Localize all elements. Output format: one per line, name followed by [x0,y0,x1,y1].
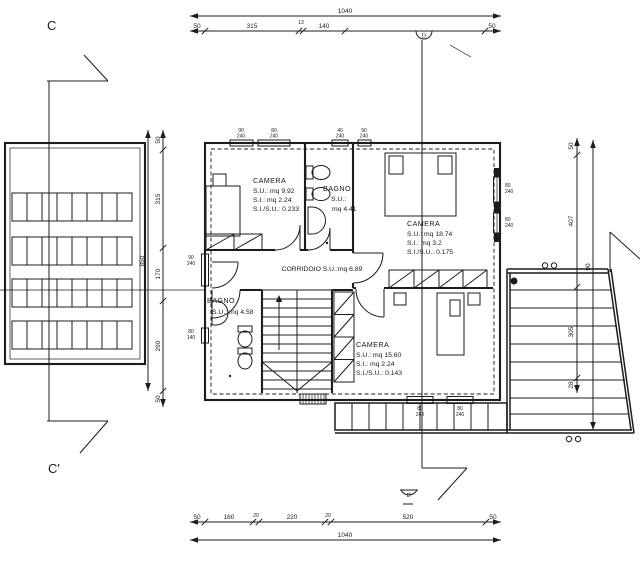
section-label-d-prime: D' [406,493,411,499]
window-tag: 240 [360,134,369,140]
window [258,140,290,146]
dim: 220 [287,514,298,521]
section-c-line [47,55,108,453]
room-name-camera3: CAMERA [356,340,389,349]
section-label-c: C [47,18,56,33]
room-area: S.I.: mq 2.24 [356,361,395,368]
window-tag: 240 [237,134,246,140]
newel-post [511,278,518,285]
section-d-line [400,40,467,504]
dim: 50 [489,514,497,521]
room-name-corridoio: CORRIDOIO S.U.:mq 6.89 [282,266,363,273]
room-name-camera1: CAMERA [253,176,286,185]
dim: 140 [319,23,330,30]
door-corridor-exterior [212,262,238,288]
room-name-bagno2: BAGNO [207,296,235,305]
room-area: S.U.: mq 4.58 [212,309,254,316]
room-area: S.I./S.U.: 0.175 [407,249,453,256]
window-tag: 240 [270,134,279,140]
dim-top-total: 1040 [338,8,353,15]
pergola-beam-row [12,321,132,349]
window-tag: 240 [505,223,514,229]
dim: 28 [568,381,575,389]
room-name-bagno1: BAGNO [323,184,351,193]
floor-plan-page: CAMERA S.U.: mq 9.92 S.I.: mq 2.24 S.I./… [0,0,640,561]
dim: 50 [155,395,162,403]
window [358,140,371,146]
window [202,328,209,343]
toilet-icon [238,326,252,347]
dim: 315 [155,193,162,204]
door-bagno1 [308,228,330,250]
section-label-c-prime: C' [48,461,60,476]
door-camera3 [356,289,384,317]
room-area: S.I.: mq 2.24 [253,197,292,204]
dim-bottom-total: 1040 [338,532,353,539]
window-tag: 240 [456,412,465,418]
bidet-icon [238,348,252,369]
wardrobe-camera3 [334,292,354,382]
room-area: mq 4.41 [332,206,357,213]
dim: 290 [155,340,162,351]
room-area: S.I.: mq 3.2 [407,240,442,247]
terrace-pergola [0,143,205,364]
pergola-beam-row [12,279,132,307]
window-tag: 140 [187,335,196,341]
bed-camera3 [394,293,480,355]
dim: 170 [155,268,162,279]
wardrobe-camera2 [389,270,487,288]
dim: 50 [193,514,201,521]
dim: 13 [298,20,304,26]
dim: 90 [585,263,592,271]
room-area: S.I./S.U.: 0.233 [253,206,299,213]
dim-left-total: 850 [139,255,146,266]
toilet-icon [306,166,330,180]
dim: 50 [568,142,575,150]
dim: 315 [247,23,258,30]
dim: 50 [488,23,496,30]
window-tag: 240 [336,134,345,140]
dim: 50 [193,23,201,30]
dim: 520 [403,514,414,521]
room-area: S.I./S.U.: 0.143 [356,370,402,377]
window [230,140,253,146]
window-tag: 240 [187,261,196,267]
floor-plan-canvas: CAMERA S.U.: mq 9.92 S.I.: mq 2.24 S.I./… [0,0,640,561]
dim: 20 [325,513,331,519]
room-area: S.U.: [331,196,346,203]
window-tag: 240 [505,189,514,195]
door-camera1 [275,225,300,250]
pergola-beam-row [12,237,132,265]
section-right-mark [610,232,640,272]
stair-up-arrow [276,295,282,350]
dim: 20 [253,513,259,519]
internal-stairs [262,290,332,404]
window-tag: 240 [416,412,425,418]
bed-camera2 [385,153,456,216]
window [202,254,209,286]
external-stairs [507,263,634,442]
dim: 305 [568,326,575,337]
room-area: S.U.: mq 15.60 [356,352,402,359]
dim: 50 [155,136,162,144]
room-name-camera2: CAMERA [407,219,440,228]
room-area: S.U.: mq 18.74 [407,231,453,238]
section-label-d: D [422,34,426,40]
window [332,140,348,146]
sink-icon [308,207,326,234]
dim: 407 [568,215,575,226]
room-area: S.U.: mq 9.92 [253,188,295,195]
dim: 160 [224,514,235,521]
pergola-beam-row [12,193,132,221]
